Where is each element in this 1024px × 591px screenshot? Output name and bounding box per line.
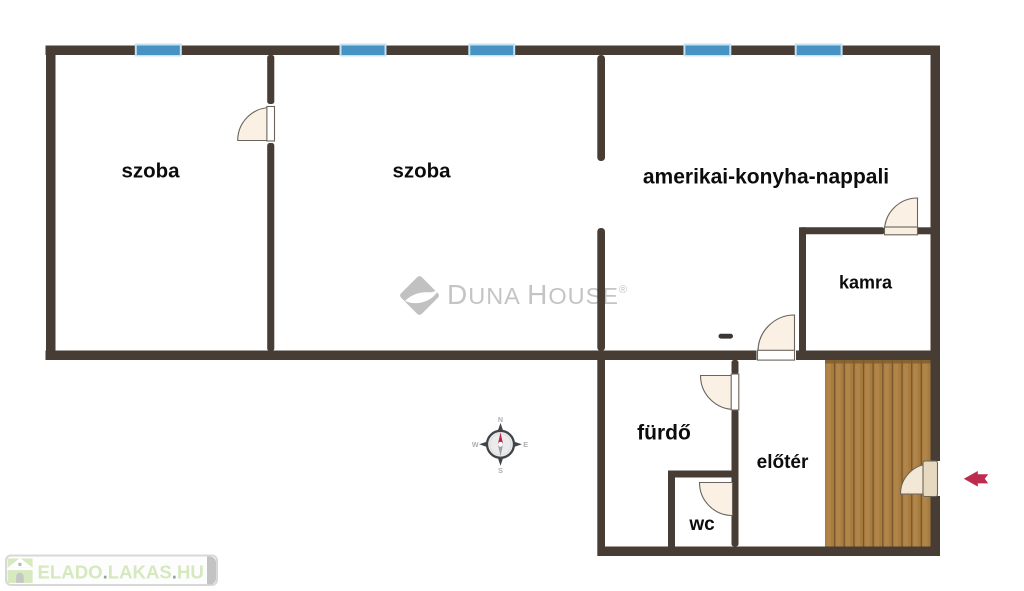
svg-text:N: N [498, 415, 503, 424]
svg-text:amerikai-konyha-nappali: amerikai-konyha-nappali [643, 166, 889, 189]
svg-text:E: E [523, 440, 528, 449]
svg-text:W: W [472, 440, 479, 449]
svg-text:kamra: kamra [839, 273, 893, 293]
svg-text:wc: wc [688, 514, 715, 535]
svg-text:S: S [498, 466, 503, 475]
svg-text:ELADO.LAKAS.HU: ELADO.LAKAS.HU [38, 562, 204, 583]
svg-text:előtér: előtér [757, 452, 809, 473]
svg-text:szoba: szoba [121, 160, 180, 183]
svg-text:szoba: szoba [392, 160, 451, 183]
svg-text:fürdő: fürdő [637, 422, 691, 445]
